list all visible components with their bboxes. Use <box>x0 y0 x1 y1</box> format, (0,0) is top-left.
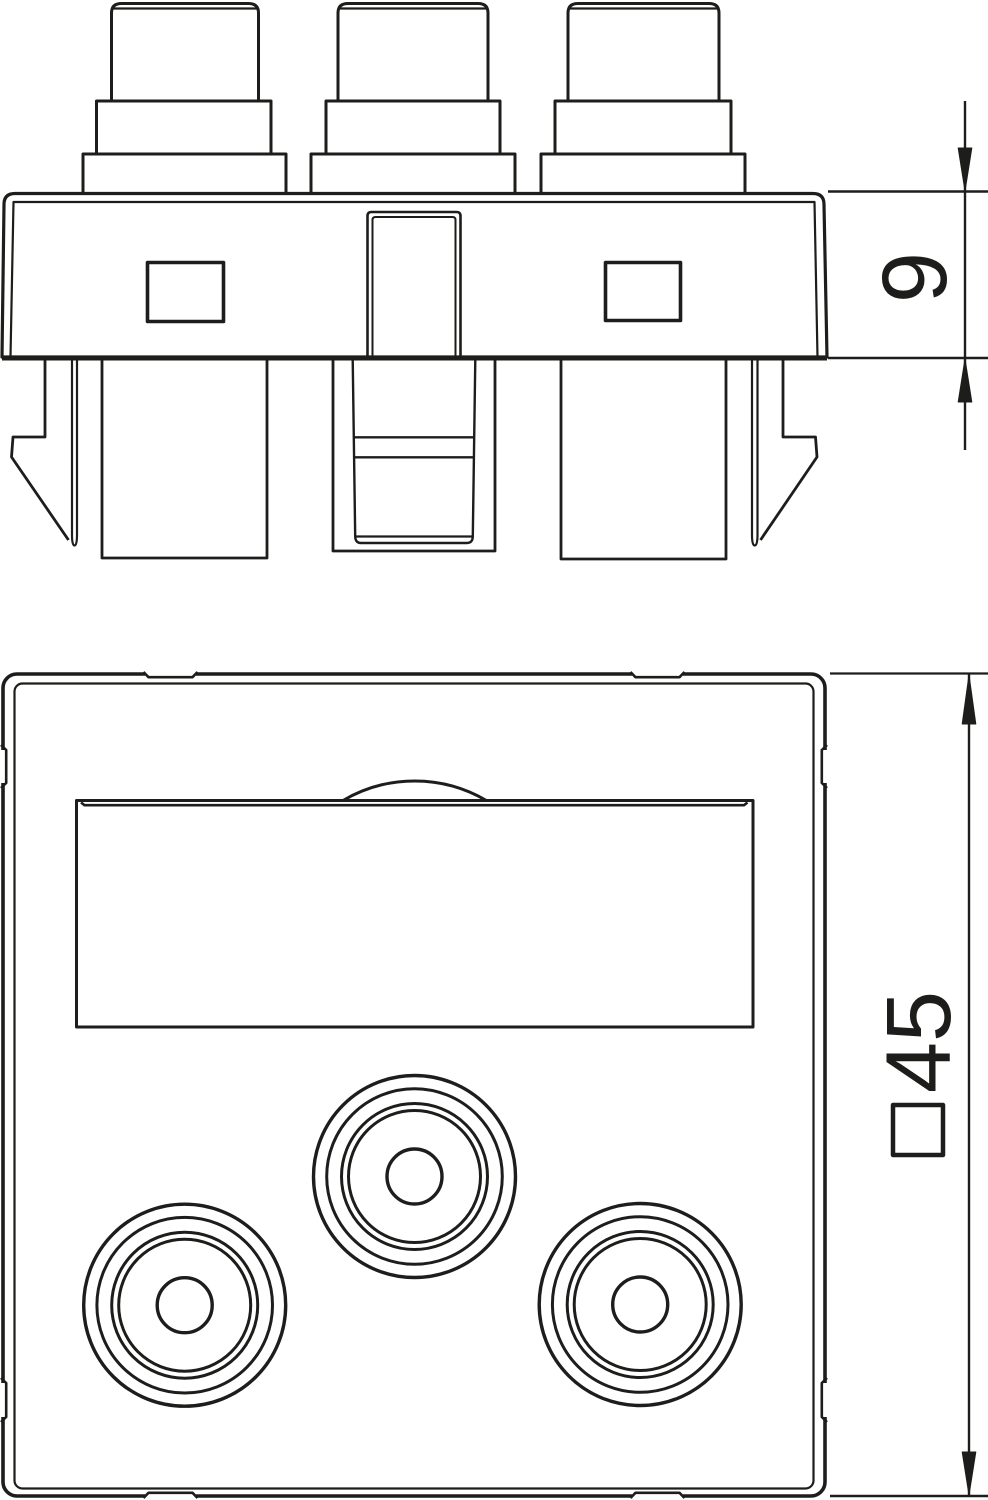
svg-text:9: 9 <box>864 252 966 303</box>
svg-text:45: 45 <box>868 991 970 1093</box>
